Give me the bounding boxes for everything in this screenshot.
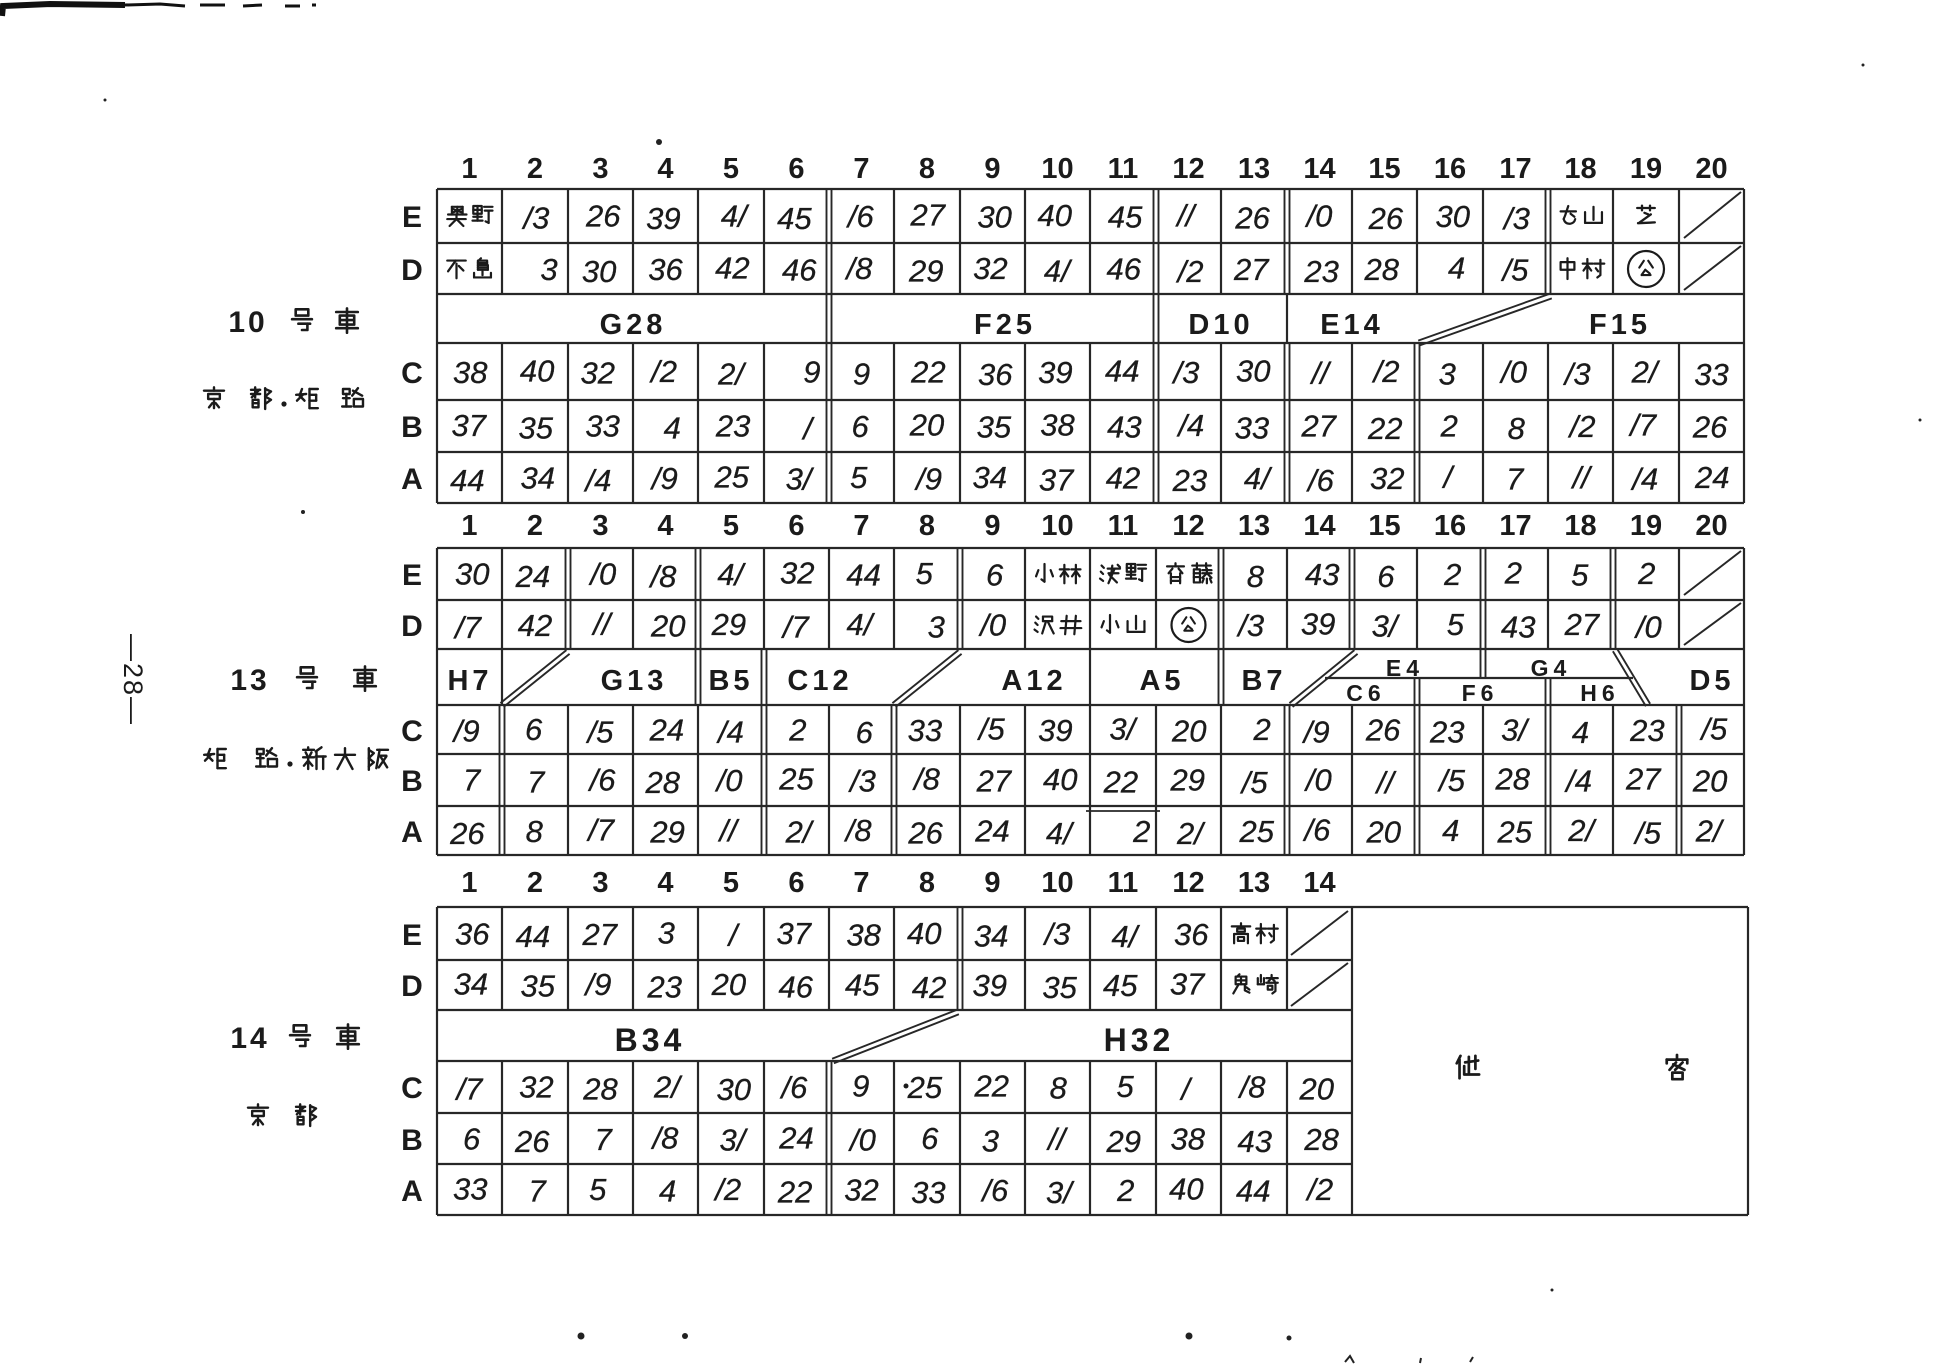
svg-text:25: 25 bbox=[1497, 815, 1533, 850]
svg-text:/9: /9 bbox=[1302, 714, 1330, 749]
svg-text:1: 1 bbox=[461, 510, 477, 542]
svg-text:/6: /6 bbox=[1306, 463, 1335, 498]
svg-text:43: 43 bbox=[1107, 410, 1141, 445]
svg-text:22: 22 bbox=[910, 355, 945, 390]
svg-text:43: 43 bbox=[1305, 557, 1339, 592]
svg-text:16: 16 bbox=[1434, 153, 1466, 185]
svg-text:40: 40 bbox=[1037, 198, 1071, 233]
svg-text:4/: 4/ bbox=[717, 557, 746, 592]
svg-text:/0: /0 bbox=[1499, 355, 1527, 390]
svg-text:2: 2 bbox=[1132, 814, 1150, 849]
svg-text:/5: /5 bbox=[1633, 815, 1662, 850]
svg-text:5: 5 bbox=[723, 867, 739, 899]
svg-text:2/: 2/ bbox=[717, 356, 747, 391]
svg-text:/9: /9 bbox=[650, 461, 678, 496]
svg-text:10: 10 bbox=[1041, 867, 1073, 899]
svg-text:H7: H7 bbox=[447, 665, 492, 697]
svg-text:4: 4 bbox=[657, 510, 673, 542]
svg-text:8: 8 bbox=[1050, 1071, 1068, 1106]
svg-text:11: 11 bbox=[1108, 867, 1139, 899]
svg-text:4: 4 bbox=[657, 867, 673, 899]
svg-text:2/: 2/ bbox=[653, 1070, 683, 1105]
svg-text:7: 7 bbox=[528, 1174, 547, 1209]
svg-text:28: 28 bbox=[1494, 762, 1530, 797]
svg-text:4: 4 bbox=[657, 153, 673, 185]
svg-text:23: 23 bbox=[1629, 713, 1664, 748]
svg-text:40: 40 bbox=[1043, 762, 1077, 797]
svg-text:10: 10 bbox=[1041, 510, 1073, 542]
svg-text:/8: /8 bbox=[912, 762, 941, 797]
svg-text:32: 32 bbox=[1370, 461, 1404, 496]
svg-text:4: 4 bbox=[659, 1174, 676, 1209]
svg-text:22: 22 bbox=[974, 1069, 1009, 1104]
svg-text:46: 46 bbox=[779, 969, 814, 1004]
svg-text:3/: 3/ bbox=[786, 462, 815, 497]
svg-text:/3: /3 bbox=[1563, 356, 1591, 391]
svg-text:13: 13 bbox=[230, 664, 269, 697]
svg-text:9: 9 bbox=[853, 356, 870, 391]
svg-text:/5: /5 bbox=[1437, 763, 1466, 798]
svg-text:33: 33 bbox=[1235, 410, 1269, 445]
svg-text:C: C bbox=[401, 1072, 423, 1105]
svg-text:B5: B5 bbox=[708, 665, 753, 697]
svg-text:44: 44 bbox=[450, 463, 484, 498]
svg-text:/0: /0 bbox=[978, 608, 1006, 643]
svg-text:45: 45 bbox=[1103, 968, 1138, 1003]
svg-text:4: 4 bbox=[1442, 813, 1459, 848]
svg-text:20: 20 bbox=[1692, 764, 1727, 799]
svg-text:/7: /7 bbox=[1628, 408, 1658, 443]
svg-text:26: 26 bbox=[1368, 201, 1404, 236]
svg-text:30: 30 bbox=[717, 1072, 751, 1107]
svg-text:16: 16 bbox=[1434, 510, 1466, 542]
svg-text:36: 36 bbox=[978, 357, 1013, 392]
svg-text:6: 6 bbox=[788, 153, 804, 185]
svg-text:30: 30 bbox=[455, 557, 489, 592]
svg-text:24: 24 bbox=[649, 713, 684, 748]
svg-text:14: 14 bbox=[1303, 867, 1335, 899]
svg-text:/8: /8 bbox=[844, 251, 873, 286]
svg-text:/5: /5 bbox=[1501, 253, 1530, 288]
svg-text:2/: 2/ bbox=[1631, 355, 1661, 390]
svg-text:6: 6 bbox=[525, 712, 543, 747]
svg-text:24: 24 bbox=[1694, 460, 1729, 495]
svg-text:46: 46 bbox=[1106, 252, 1141, 287]
svg-text:39: 39 bbox=[1038, 713, 1072, 748]
svg-text:13: 13 bbox=[1238, 153, 1270, 185]
svg-text:/3: /3 bbox=[1502, 201, 1530, 236]
svg-text:/3: /3 bbox=[1043, 917, 1071, 952]
svg-text:23: 23 bbox=[1303, 254, 1338, 289]
svg-text:22: 22 bbox=[1103, 764, 1138, 799]
svg-text:27: 27 bbox=[909, 198, 946, 233]
svg-text:27: 27 bbox=[1233, 252, 1270, 287]
svg-text:/7: /7 bbox=[781, 609, 811, 644]
svg-text:4/: 4/ bbox=[1044, 253, 1073, 288]
svg-text:33: 33 bbox=[585, 409, 619, 444]
svg-text:45: 45 bbox=[845, 968, 880, 1003]
svg-text:3/: 3/ bbox=[719, 1123, 748, 1158]
svg-text:E: E bbox=[402, 559, 422, 592]
svg-text:2: 2 bbox=[1252, 712, 1270, 747]
svg-text:/4: /4 bbox=[583, 463, 611, 498]
svg-text:8: 8 bbox=[919, 510, 935, 542]
svg-text:3/: 3/ bbox=[1501, 713, 1530, 748]
svg-text:27: 27 bbox=[582, 917, 619, 952]
svg-text:32: 32 bbox=[580, 356, 614, 391]
svg-text:3: 3 bbox=[982, 1123, 999, 1158]
svg-text:/6: /6 bbox=[980, 1173, 1009, 1208]
svg-text:43: 43 bbox=[1501, 609, 1535, 644]
svg-text:37: 37 bbox=[452, 408, 488, 443]
svg-text:E: E bbox=[402, 201, 422, 234]
svg-text:—28—: —28— bbox=[118, 634, 148, 726]
svg-text:29: 29 bbox=[711, 607, 746, 642]
svg-text:12: 12 bbox=[1172, 153, 1204, 185]
svg-text:23: 23 bbox=[715, 409, 750, 444]
svg-text://: // bbox=[1310, 356, 1333, 391]
svg-text:D: D bbox=[401, 970, 423, 1003]
svg-text:E: E bbox=[402, 919, 422, 952]
svg-text:2: 2 bbox=[1637, 556, 1655, 591]
svg-text://: // bbox=[1375, 765, 1398, 800]
svg-text:34: 34 bbox=[974, 918, 1008, 953]
svg-text:42: 42 bbox=[518, 608, 552, 643]
svg-text:36: 36 bbox=[648, 252, 683, 287]
svg-text:4: 4 bbox=[664, 410, 681, 445]
svg-text:36: 36 bbox=[1174, 917, 1209, 952]
svg-text:7: 7 bbox=[1506, 462, 1525, 497]
svg-text:27: 27 bbox=[1625, 762, 1662, 797]
svg-text:34: 34 bbox=[454, 967, 488, 1002]
svg-text:33: 33 bbox=[911, 1175, 945, 1210]
svg-text:7: 7 bbox=[463, 763, 482, 798]
svg-text:30: 30 bbox=[582, 254, 616, 289]
svg-text:15: 15 bbox=[1368, 510, 1400, 542]
svg-text:40: 40 bbox=[520, 354, 554, 389]
svg-text:46: 46 bbox=[782, 253, 817, 288]
svg-text:2: 2 bbox=[788, 713, 806, 748]
svg-text:45: 45 bbox=[1108, 200, 1143, 235]
svg-text:38: 38 bbox=[1040, 408, 1075, 443]
svg-text:30: 30 bbox=[1236, 354, 1270, 389]
svg-text:6: 6 bbox=[788, 867, 804, 899]
svg-text:25: 25 bbox=[1239, 814, 1275, 849]
svg-text:42: 42 bbox=[715, 251, 749, 286]
svg-text:11: 11 bbox=[1108, 153, 1139, 185]
svg-text:6: 6 bbox=[986, 558, 1004, 593]
svg-text:A12: A12 bbox=[1001, 665, 1066, 697]
svg-text:43: 43 bbox=[1237, 1124, 1271, 1159]
svg-text:C: C bbox=[401, 357, 423, 390]
svg-text:19: 19 bbox=[1630, 510, 1662, 542]
svg-text:/7: /7 bbox=[586, 813, 616, 848]
svg-text:24: 24 bbox=[515, 559, 550, 594]
svg-text:9: 9 bbox=[803, 355, 820, 390]
svg-text:/3: /3 bbox=[848, 764, 876, 799]
svg-text:B: B bbox=[401, 765, 423, 798]
svg-text:2/: 2/ bbox=[1567, 813, 1597, 848]
svg-text:28: 28 bbox=[644, 765, 680, 800]
svg-text:9: 9 bbox=[984, 153, 1000, 185]
svg-text:/3: /3 bbox=[1171, 355, 1199, 390]
svg-text:C12: C12 bbox=[787, 665, 852, 697]
svg-text:B7: B7 bbox=[1241, 665, 1286, 697]
svg-text:/9: /9 bbox=[914, 462, 942, 497]
svg-text:3/: 3/ bbox=[1046, 1175, 1075, 1210]
svg-text:3: 3 bbox=[592, 867, 608, 899]
svg-text:45: 45 bbox=[777, 201, 812, 236]
svg-text:33: 33 bbox=[453, 1172, 487, 1207]
svg-text:2: 2 bbox=[1504, 556, 1522, 591]
svg-text:3: 3 bbox=[540, 252, 557, 287]
svg-text:8: 8 bbox=[919, 153, 935, 185]
svg-text:/3: /3 bbox=[1236, 608, 1264, 643]
svg-text:D: D bbox=[401, 610, 423, 643]
svg-text:14: 14 bbox=[1303, 153, 1335, 185]
svg-text:44: 44 bbox=[1236, 1174, 1270, 1209]
svg-text:5: 5 bbox=[723, 510, 739, 542]
svg-text:2/: 2/ bbox=[1695, 814, 1725, 849]
svg-text:14: 14 bbox=[230, 1022, 269, 1055]
svg-text:11: 11 bbox=[1108, 510, 1139, 542]
svg-text:8: 8 bbox=[1247, 559, 1265, 594]
svg-text:23: 23 bbox=[1172, 463, 1207, 498]
svg-text:20: 20 bbox=[1298, 1071, 1333, 1106]
svg-text:C6: C6 bbox=[1346, 680, 1385, 706]
svg-text:9: 9 bbox=[984, 510, 1000, 542]
svg-text:32: 32 bbox=[844, 1173, 878, 1208]
svg-text:22: 22 bbox=[777, 1174, 812, 1209]
svg-text:D10: D10 bbox=[1188, 309, 1253, 341]
svg-text:38: 38 bbox=[453, 355, 488, 390]
svg-text:2: 2 bbox=[527, 510, 543, 542]
svg-text:26: 26 bbox=[514, 1124, 550, 1159]
svg-text:35: 35 bbox=[1042, 970, 1077, 1005]
svg-text:20: 20 bbox=[909, 408, 944, 443]
svg-text:/9: /9 bbox=[583, 967, 611, 1002]
svg-text:44: 44 bbox=[1105, 354, 1139, 389]
svg-text:4/: 4/ bbox=[1244, 461, 1273, 496]
svg-text:B: B bbox=[401, 1124, 423, 1157]
svg-text:5: 5 bbox=[723, 153, 739, 185]
svg-text:32: 32 bbox=[780, 556, 814, 591]
svg-text:23: 23 bbox=[1429, 714, 1464, 749]
svg-text:32: 32 bbox=[973, 251, 1007, 286]
svg-text://: // bbox=[1175, 198, 1198, 233]
svg-text:7: 7 bbox=[594, 1122, 613, 1157]
svg-text:5: 5 bbox=[1571, 558, 1589, 593]
svg-text:7: 7 bbox=[527, 764, 546, 799]
svg-text:10: 10 bbox=[1041, 153, 1073, 185]
svg-text:27: 27 bbox=[976, 764, 1013, 799]
svg-text:12: 12 bbox=[1172, 867, 1204, 899]
svg-text:44: 44 bbox=[846, 558, 880, 593]
svg-text:/4: /4 bbox=[1630, 462, 1658, 497]
svg-text:4: 4 bbox=[1448, 251, 1465, 286]
svg-text:39: 39 bbox=[1301, 607, 1335, 642]
svg-text:42: 42 bbox=[912, 970, 946, 1005]
svg-text:42: 42 bbox=[1106, 461, 1140, 496]
svg-text:28: 28 bbox=[1363, 252, 1399, 287]
svg-text:25: 25 bbox=[713, 460, 749, 495]
svg-text:5: 5 bbox=[916, 556, 934, 591]
svg-text:40: 40 bbox=[1169, 1172, 1203, 1207]
svg-text:8: 8 bbox=[1508, 411, 1526, 446]
svg-text:38: 38 bbox=[1171, 1122, 1206, 1157]
svg-text:28: 28 bbox=[582, 1071, 618, 1106]
svg-text:H6: H6 bbox=[1580, 680, 1619, 706]
svg-text:28: 28 bbox=[1303, 1122, 1339, 1157]
svg-text:2: 2 bbox=[1443, 557, 1461, 592]
svg-text:34: 34 bbox=[521, 461, 555, 496]
svg-text:17: 17 bbox=[1499, 510, 1531, 542]
svg-text:2: 2 bbox=[527, 867, 543, 899]
svg-text:23: 23 bbox=[647, 969, 682, 1004]
svg-text:27: 27 bbox=[1564, 607, 1601, 642]
svg-text:14: 14 bbox=[1303, 510, 1335, 542]
svg-text:2: 2 bbox=[1440, 409, 1458, 444]
svg-text:/7: /7 bbox=[455, 1071, 485, 1106]
svg-text:D5: D5 bbox=[1689, 665, 1734, 697]
svg-text:4/: 4/ bbox=[846, 607, 875, 642]
svg-text:3/: 3/ bbox=[1372, 609, 1401, 644]
svg-text:D: D bbox=[401, 254, 423, 287]
svg-text:G4: G4 bbox=[1531, 655, 1572, 681]
svg-text:/0: /0 bbox=[848, 1123, 876, 1158]
svg-text:39: 39 bbox=[1038, 355, 1072, 390]
svg-text:18: 18 bbox=[1564, 510, 1596, 542]
svg-text:4/: 4/ bbox=[1111, 919, 1140, 954]
svg-text:17: 17 bbox=[1499, 153, 1531, 185]
svg-text:44: 44 bbox=[516, 919, 550, 954]
svg-text:19: 19 bbox=[1630, 153, 1662, 185]
svg-text:/2: /2 bbox=[1176, 254, 1204, 289]
svg-text:13: 13 bbox=[1238, 867, 1270, 899]
svg-text:25: 25 bbox=[907, 1070, 943, 1105]
svg-text:/9: /9 bbox=[452, 714, 480, 749]
svg-text:22: 22 bbox=[1367, 411, 1402, 446]
svg-text:3/: 3/ bbox=[1109, 712, 1138, 747]
svg-text:/0: /0 bbox=[588, 557, 616, 592]
svg-text:5: 5 bbox=[850, 460, 868, 495]
svg-text:2/: 2/ bbox=[1176, 816, 1206, 851]
svg-text:/5: /5 bbox=[1699, 712, 1728, 747]
svg-text:24: 24 bbox=[974, 814, 1009, 849]
svg-text:/7: /7 bbox=[453, 610, 483, 645]
svg-text:A: A bbox=[401, 463, 423, 496]
svg-text:/2: /2 bbox=[1568, 409, 1596, 444]
svg-text:20: 20 bbox=[1695, 153, 1727, 185]
svg-text:/6: /6 bbox=[588, 763, 617, 798]
svg-text:35: 35 bbox=[977, 410, 1012, 445]
svg-text:/0: /0 bbox=[1634, 609, 1662, 644]
svg-text:A: A bbox=[401, 816, 423, 849]
svg-text:4/: 4/ bbox=[1046, 816, 1075, 851]
svg-text:E4: E4 bbox=[1386, 655, 1424, 681]
svg-text:20: 20 bbox=[650, 609, 685, 644]
svg-text:32: 32 bbox=[519, 1070, 553, 1105]
svg-text:29: 29 bbox=[1170, 763, 1205, 798]
svg-text:C: C bbox=[401, 715, 423, 748]
svg-text:37: 37 bbox=[1170, 967, 1206, 1002]
svg-text:40: 40 bbox=[907, 916, 941, 951]
svg-text:33: 33 bbox=[908, 713, 942, 748]
svg-text:2: 2 bbox=[527, 153, 543, 185]
svg-text:B34: B34 bbox=[615, 1022, 686, 1058]
svg-text:7: 7 bbox=[853, 867, 869, 899]
svg-text:35: 35 bbox=[518, 410, 553, 445]
svg-text:/2: /2 bbox=[1372, 354, 1400, 389]
svg-text:4/: 4/ bbox=[721, 199, 750, 234]
svg-text:34: 34 bbox=[972, 460, 1006, 495]
svg-text:/5: /5 bbox=[1240, 765, 1269, 800]
svg-text:6: 6 bbox=[851, 409, 869, 444]
svg-text:/0: /0 bbox=[715, 763, 743, 798]
svg-text:/8: /8 bbox=[648, 559, 677, 594]
svg-text:37: 37 bbox=[1039, 462, 1075, 497]
svg-text:26: 26 bbox=[1234, 200, 1270, 235]
svg-text:/2: /2 bbox=[713, 1172, 741, 1207]
svg-text:6: 6 bbox=[921, 1121, 939, 1156]
svg-text:26: 26 bbox=[585, 199, 621, 234]
svg-text:12: 12 bbox=[1172, 510, 1204, 542]
svg-text:39: 39 bbox=[646, 201, 680, 236]
svg-text:/2: /2 bbox=[649, 354, 677, 389]
svg-text:2: 2 bbox=[1116, 1173, 1134, 1208]
svg-text:18: 18 bbox=[1564, 153, 1596, 185]
svg-text:3: 3 bbox=[658, 916, 675, 951]
svg-text:/6: /6 bbox=[779, 1070, 808, 1105]
svg-text:A: A bbox=[401, 1175, 423, 1208]
svg-text:G28: G28 bbox=[600, 309, 667, 341]
svg-text:/3: /3 bbox=[521, 200, 549, 235]
svg-text:20: 20 bbox=[711, 967, 746, 1002]
svg-text:33: 33 bbox=[1694, 357, 1728, 392]
svg-text:7: 7 bbox=[853, 153, 869, 185]
svg-text:24: 24 bbox=[778, 1121, 813, 1156]
svg-text:36: 36 bbox=[455, 917, 490, 952]
svg-text:6: 6 bbox=[1377, 559, 1395, 594]
svg-text:3: 3 bbox=[592, 153, 608, 185]
svg-text:/6: /6 bbox=[846, 199, 875, 234]
svg-text://: // bbox=[591, 607, 614, 642]
svg-text:25: 25 bbox=[778, 762, 814, 797]
svg-text:/5: /5 bbox=[586, 714, 615, 749]
svg-text:/5: /5 bbox=[977, 712, 1006, 747]
svg-text:9: 9 bbox=[984, 867, 1000, 899]
svg-text:/2: /2 bbox=[1305, 1172, 1333, 1207]
svg-text:26: 26 bbox=[1692, 410, 1728, 445]
svg-text:6: 6 bbox=[788, 510, 804, 542]
svg-text:9: 9 bbox=[852, 1069, 869, 1104]
svg-text:/0: /0 bbox=[1305, 199, 1333, 234]
svg-text:26: 26 bbox=[449, 816, 485, 851]
svg-text:2/: 2/ bbox=[785, 815, 815, 850]
svg-text:10: 10 bbox=[228, 306, 267, 339]
svg-text:/8: /8 bbox=[1238, 1070, 1267, 1105]
svg-text:37: 37 bbox=[776, 916, 812, 951]
svg-text:F6: F6 bbox=[1462, 680, 1499, 706]
svg-text:5: 5 bbox=[589, 1172, 607, 1207]
svg-text:G13: G13 bbox=[601, 665, 668, 697]
svg-text:20: 20 bbox=[1366, 815, 1401, 850]
svg-text:/8: /8 bbox=[844, 813, 873, 848]
svg-text:29: 29 bbox=[908, 253, 943, 288]
svg-text:B: B bbox=[401, 411, 423, 444]
svg-text:13: 13 bbox=[1238, 510, 1270, 542]
svg-text://: // bbox=[1046, 1122, 1069, 1157]
